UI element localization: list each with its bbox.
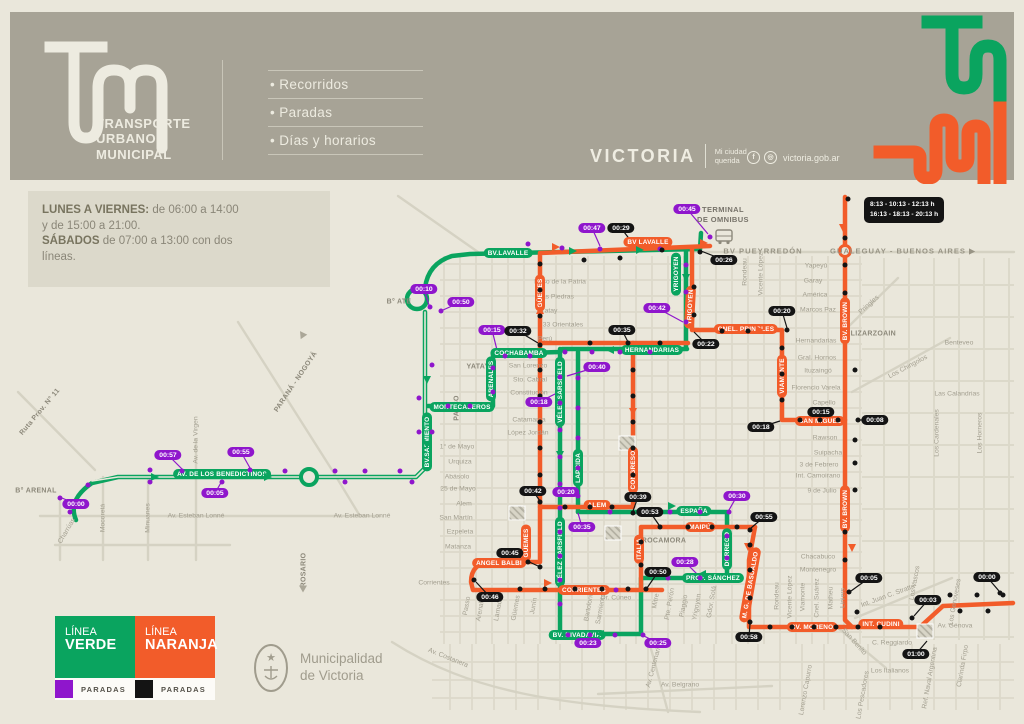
route-direction-arrow [423,376,431,384]
street-name: Güemes [510,595,521,622]
green-line-stop [725,556,730,561]
orange-line-stop [780,372,785,377]
orange-line-stop [563,505,568,510]
menu-item-recorridos: Recorridos [268,70,423,98]
route-direction-arrow [264,473,272,481]
orange-line-stop [538,343,543,348]
street-name: GUALEGUAY - BUENOS AIRES ▶ [830,247,976,256]
orange-line-stop [626,587,631,592]
orange-line-stop [658,341,663,346]
green-line-stop [343,480,348,485]
orange-line-stop [639,540,644,545]
green-line-stop [727,510,732,515]
time-badge: 00:03 [914,595,941,605]
street-name: Av. Belgrano [661,682,699,689]
schedule-saturday-hours-2: líneas. [42,250,316,266]
street-name: Capello [812,400,835,407]
bus-icon [714,228,734,246]
route-direction-arrow [299,586,307,593]
street-name: Yapeyú [805,263,828,270]
orange-line-stop [631,446,636,451]
street-name: Los Chingolos [887,354,928,380]
time-badge: 00:20 [552,487,579,497]
street-name: Montenegro [800,567,836,574]
street-name: Bartoloni [583,594,595,622]
orange-line-stop [626,341,631,346]
street-name: Ezpeleta [447,529,473,536]
orange-line-stop [843,530,848,535]
green-line-stop [417,396,422,401]
orange-line-stop [834,625,839,630]
street-name: Mocoretá [100,504,107,532]
orange-line-stop [780,398,785,403]
green-line-stop [558,482,563,487]
street-name: Matheu [828,587,835,610]
brand-tagline: Mi ciudadquerida [715,147,747,166]
green-line-stop [560,246,565,251]
time-badge: 00:58 [735,632,762,642]
time-badge: 00:45 [496,548,523,558]
orange-line-stop [878,625,883,630]
orange-line-stop [631,420,636,425]
orange-line-stop [843,558,848,563]
orange-line-stop [538,473,543,478]
street-name: Av. Esteban Lonné [334,513,391,520]
time-badge: 00:18 [525,397,552,407]
orange-line-stop [588,505,593,510]
time-badge: 00:00 [62,499,89,509]
route-direction-arrow [839,224,847,232]
orange-line-stop [644,587,649,592]
schedule-panel: LUNES A VIERNES: de 06:00 a 14:00 y de 1… [28,191,330,287]
street-name: San Martín [439,515,472,522]
orange-line-stop [692,313,697,318]
green-line-stop [491,390,496,395]
time-badge: 00:42 [643,303,670,313]
schedule-weekdays-label: LUNES A VIERNES: [42,204,149,216]
municipality-name: Municipalidad de Victoria [300,651,383,685]
green-line-stop [618,350,623,355]
orange-line-stop [538,446,543,451]
street-name: San Benito [840,627,867,656]
green-street-label: COCHABAMBA [490,348,547,358]
green-line-stop [641,633,646,638]
time-badge: 00:57 [154,450,181,460]
terminal-label: TERMINAL DE OMNIBUS [697,205,749,225]
route-direction-arrow [606,346,614,354]
green-line-stop [608,510,613,515]
street-name: Florencio Varela [792,385,841,392]
orange-line-stop [855,610,860,615]
street-name: Int. Camoirano [796,473,841,480]
logo-title: TRANSPORTE URBANO MUNICIPAL [96,116,191,162]
green-line-stop [563,350,568,355]
orange-line-stop [618,256,623,261]
street-name: Liniers [840,588,847,608]
schedule-weekdays-hours: de 06:00 a 14:00 [149,204,239,216]
orange-street-label: CONGRESO [628,447,638,494]
time-badge: 00:29 [607,223,634,233]
orange-line-stop [836,418,841,423]
green-line-stop [558,578,563,583]
green-line-stop [684,263,689,268]
orange-line-stop [748,620,753,625]
street-name: Mitre [651,593,661,609]
green-line-stop [86,483,91,488]
green-street-label: VÉLEZ SARSFIELD [555,517,565,587]
crossing-icon [605,526,622,541]
street-name: Clarinda Firpo [956,644,970,687]
times-line-1: 8:13 - 10:13 - 12:13 h [870,200,938,210]
time-badge: 00:15 [807,407,834,417]
orange-line-stop [600,587,605,592]
time-badge: 00:50 [447,297,474,307]
orange-line-stop [631,394,636,399]
street-name: Passo [462,596,472,616]
victoria-brand: VICTORIA Mi ciudadquerida [590,144,747,168]
social-row: f ◎ victoria.gob.ar [747,151,840,164]
crossing-icon [509,506,526,521]
legend-orange-card: LÍNEA NARANJA PARADAS [135,616,215,700]
orange-line-stop [698,250,703,255]
green-street-label: PROF. SÁNCHEZ [682,573,744,583]
street-name: Yrigoyen [691,593,703,621]
street-name: Benteveo [945,340,974,347]
street-name: Av. Costanera [427,647,469,669]
orange-line-stop [538,368,543,373]
green-line-stop [576,376,581,381]
header: TRANSPORTE URBANO MUNICIPAL Recorridos P… [10,12,1014,180]
green-street-label: VÉLEZ SARSFIELD [555,357,565,427]
orange-street-label: GÜEMES [521,525,531,562]
green-street-label: YRIGOYEN [671,252,681,295]
orange-line-stop [818,418,823,423]
orange-line-stop [639,563,644,568]
green-line-stop [725,534,730,539]
route-direction-arrow [848,544,856,552]
green-line-stop [398,469,403,474]
orange-line-stop [748,543,753,548]
street-name: B° ARENAL [15,488,56,495]
green-line-stop [708,235,713,240]
street-name: Los Horneros [977,413,984,454]
green-line-stop [363,469,368,474]
street-name: 9 de Julio [807,488,836,495]
time-badge: 00:55 [750,512,777,522]
green-line-stop [148,480,153,485]
green-line-stop [576,466,581,471]
orange-line-stop [526,560,531,565]
orange-line-stop [538,420,543,425]
time-badge: 00:32 [504,326,531,336]
time-badge: 00:35 [568,522,595,532]
orange-line-stop [975,593,980,598]
orange-line-stop [846,197,851,202]
paradas-label-green: PARADAS [81,685,126,694]
orange-line-stop [610,505,615,510]
street-name: Los Genoveses [947,578,962,626]
route-direction-arrow [569,247,577,255]
time-badge: 01:00 [902,649,929,659]
green-line-stop [430,430,435,435]
street-name: Abásolo [445,474,470,481]
street-name: Rondeau [742,258,749,286]
street-name: Ruta Prov. N° 11 [19,387,62,436]
green-line-stop [558,602,563,607]
green-line-stop [566,633,571,638]
orange-line-stop [631,511,636,516]
green-line-stop [428,305,433,310]
green-line-stop [446,404,451,409]
street-name: América [803,292,828,299]
orange-line-stop [856,625,861,630]
green-line-stop [648,350,653,355]
orange-street-label: ANGEL BALBI [472,558,526,568]
orange-line-stop [660,248,665,253]
street-name: ROCAMORA [642,538,686,545]
time-badge: 00:05 [855,573,882,583]
green-line-stop [491,366,496,371]
green-line-stop [558,455,563,460]
orange-line-stop [853,488,858,493]
social-handle: victoria.gob.ar [783,153,840,163]
route-direction-arrow [700,239,708,247]
time-badge: 00:08 [861,415,888,425]
muni-shield-icon: ★ [252,642,290,694]
orange-line-stop [790,625,795,630]
header-divider [222,60,223,160]
schedule-weekdays-hours-2: y de 15:00 a 21:00. [42,219,316,235]
orange-line-stop [853,368,858,373]
street-name: Los Italianos [871,668,909,675]
green-line-stop [410,480,415,485]
legend-green-card: LÍNEA VERDE PARADAS [55,616,135,700]
green-line-stop [68,510,73,515]
street-name: Perú [538,336,552,343]
orange-line-stop [538,314,543,319]
street-name: Gdor. Solá [706,586,718,619]
orange-line-stop [847,590,852,595]
time-badge: 00:42 [519,486,546,496]
route-direction-arrow [682,274,690,282]
street-name: 1° de Mayo [440,444,474,451]
green-line-stop [283,469,288,474]
orange-line-stop [631,368,636,373]
orange-line-stop [582,258,587,263]
orange-line-stop [798,418,803,423]
orange-line-stop [710,525,715,530]
victoria-wordmark: VICTORIA [590,146,696,167]
orange-stop-swatch [135,680,153,698]
green-line-stop [668,510,673,515]
time-badge: 00:26 [710,255,737,265]
orange-line-stop [518,587,523,592]
time-badge: 00:23 [574,638,601,648]
legend-orange-paradas: PARADAS [135,678,215,700]
orange-line-stop [998,591,1003,596]
route-direction-arrow [596,630,604,638]
time-badge: 00:40 [583,362,610,372]
time-badge: 00:35 [608,325,635,335]
municipality-logo: ★ Municipalidad de Victoria [252,642,383,694]
street-name: Sarmiento [595,593,607,625]
times-box: 8:13 - 10:13 - 12:13 h 16:13 - 18:13 - 2… [864,197,944,223]
instagram-icon: ◎ [764,151,777,164]
time-badge: 00:00 [973,572,1000,582]
street-name: Junín [529,597,539,615]
green-line-stop [558,428,563,433]
menu-item-paradas: Paradas [268,98,423,126]
orange-line-stop [748,596,753,601]
orange-line-stop [720,329,725,334]
green-line-stop [430,363,435,368]
street-name: Urquiza [448,459,471,466]
orange-line-stop [856,418,861,423]
street-name: 3 de Febrero [800,462,839,469]
green-street-label: AV. DE LOS BENEDICTINOS [173,469,271,479]
street-name: Alem [456,501,472,508]
orange-line-stop [785,328,790,333]
street-name: Marcos Paz [800,307,836,314]
green-line-stop [613,633,618,638]
time-badge: 00:30 [723,491,750,501]
orange-line-stop [812,625,817,630]
street-name: PARANÁ - NOGOYÁ [273,351,319,414]
orange-line-stop [948,593,953,598]
street-name: Charrúas [57,517,77,545]
time-badge: 00:10 [410,284,437,294]
green-line-stop [526,242,531,247]
green-line-stop [558,401,563,406]
green-line-stop [180,469,185,474]
orange-street-label: M. G. DE BASUALDO [739,547,762,623]
route-direction-arrow [423,441,431,449]
orange-line-stop [768,625,773,630]
menu-list: Recorridos Paradas Días y horarios [268,70,423,155]
green-street-label: BV.LAVALLE [484,248,533,258]
orange-line-stop [686,525,691,530]
street-name: Int. Juan C. Stratta [860,583,916,609]
green-line-stop [590,350,595,355]
street-name: Cnel. Suárez [814,578,821,617]
green-line-stop [684,290,689,295]
orange-line-stop [748,528,753,533]
green-line-stop [503,354,508,359]
orange-line-stop [748,568,753,573]
green-stop-swatch [55,680,73,698]
times-line-2: 16:13 - 18:13 - 20:13 h [870,210,938,220]
route-direction-arrow [297,329,308,339]
street-name: Garay [804,278,823,285]
green-line-stop [558,554,563,559]
orange-line-stop [746,329,751,334]
time-badge: 00:20 [768,306,795,316]
street-name: Chacabuco [801,554,835,561]
schedule-saturday-label: SÁBADOS [42,235,100,247]
street-name: Av. Esteban Lonné [168,513,225,520]
street-name: Matanza [445,544,471,551]
green-line-stop [248,468,253,473]
green-line-stop [148,468,153,473]
street-name: Viamonte [800,583,807,612]
time-badge: 00:55 [227,447,254,457]
orange-line-stop [986,609,991,614]
time-badge: 00:53 [636,507,663,517]
street-name: Vicente López [758,253,765,296]
orange-line-stop [543,587,548,592]
street-name: Ituzaingó [804,368,832,375]
route-direction-arrow [629,408,637,416]
route-direction-arrow [636,246,644,254]
schedule-saturday-hours: de 07:00 a 13:00 con dos [100,235,233,247]
street-name: Pte. Perón [664,588,676,621]
paradas-label-orange: PARADAS [161,685,206,694]
orange-line-stop [843,236,848,241]
green-line-stop [588,633,593,638]
green-street-label: MONTECASEROS [429,402,494,412]
orange-line-swatch: LÍNEA NARANJA [135,616,215,678]
orange-line-stop [658,525,663,530]
orange-line-stop [692,285,697,290]
street-name: Los Cardenales [934,409,941,457]
time-badge: 00:47 [578,223,605,233]
street-name: ROSARIO [301,553,308,588]
orange-line-stop [780,346,785,351]
street-name: Vicente López [787,576,794,619]
street-name: Sto. Cabral [513,377,547,384]
street-name: C. Reggiardo [872,640,912,647]
green-line-stop [576,406,581,411]
orange-line-stop [843,291,848,296]
green-line-stop [598,247,603,252]
street-name: Las Calandrias [934,391,979,398]
green-line-stop [558,375,563,380]
time-badge: 00:05 [201,488,228,498]
transit-map-poster: B° ATEB° ARENALB° LIZARZOAINROCAMORAYATA… [0,0,1024,724]
orange-line-stop [631,473,636,478]
green-line-stop [220,480,225,485]
green-street-label: ARENALES [486,357,496,402]
green-line-stop [417,430,422,435]
street-name: López Jordán [507,430,548,437]
orange-line-stop [958,609,963,614]
street-name: 33 Orientales [543,322,583,329]
orange-line-stop [853,461,858,466]
orange-line-stop [472,578,477,583]
orange-line-stop [538,500,543,505]
street-name: Av. de la Virgen [193,416,200,463]
orange-line-stop [573,587,578,592]
orange-line-stop [538,565,543,570]
street-name: 25 de Mayo [440,486,476,493]
green-line-stop [58,496,63,501]
time-badge: 00:28 [671,557,698,567]
time-badge: 00:15 [478,325,505,335]
street-name: Pringles [858,294,881,316]
legend: LÍNEA VERDE PARADAS LÍNEA NARANJA PARADA… [55,616,215,700]
street-name: Piaggio [679,594,690,618]
green-line-stop [528,354,533,359]
street-name: Minuanes [145,503,152,532]
time-badge: 00:22 [692,339,719,349]
time-badge: 00:18 [747,422,774,432]
green-street-label: ESPAÑA [676,506,711,516]
route-direction-arrow [756,326,764,334]
street-name: Suipacha [814,450,842,457]
facebook-icon: f [747,151,760,164]
orange-street-label: BV LAVALLE [623,237,672,247]
street-name: Hernandarias [796,338,837,345]
